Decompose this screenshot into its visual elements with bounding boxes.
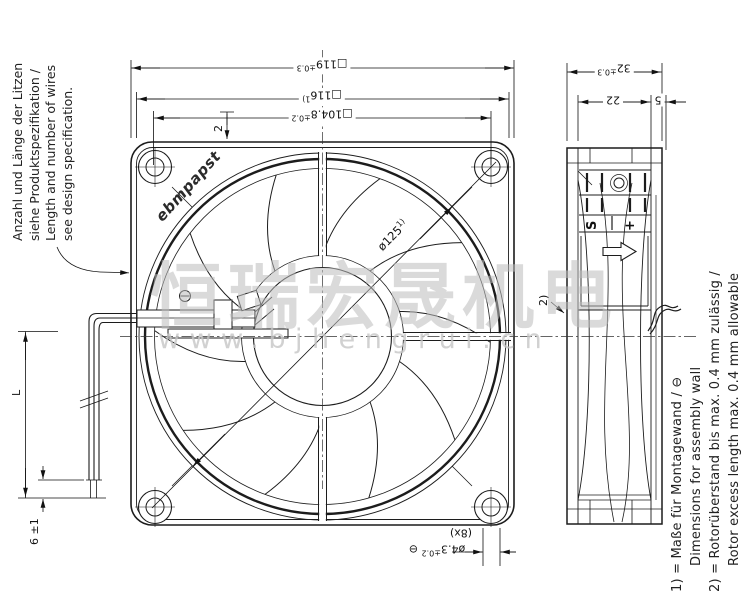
note-line: Length and number of wires: [43, 63, 60, 241]
dim-outer-square: □119±0.3: [294, 58, 351, 75]
minus-datum-icon: ⊖: [409, 543, 418, 556]
footnotes: 1) = Maße für Montagewand / ⊖ Dimensions…: [668, 271, 744, 592]
note-line: see design specification.: [60, 63, 77, 241]
footnote-2-en: Rotor excess length max. 0.4 mm allowabl…: [725, 271, 744, 592]
dim-hole-dia: ø4.3±0.2 ⊖: [406, 543, 468, 560]
dim-hole-spacing: □104.8±0.2: [288, 108, 355, 125]
note-line: Anzahl und Länge der Litzen: [10, 63, 27, 241]
footnote-2-de: 2) = Rotorüberstand bis max. 0.4 mm zulä…: [706, 271, 725, 592]
terminal-mark-s: S: [585, 221, 600, 230]
dim-wire-offset: 2: [213, 125, 225, 132]
dim-wire-length: L: [11, 390, 23, 396]
dim-depth-sub2: 5: [652, 94, 665, 107]
dim-depth-sub1: 22: [603, 94, 623, 107]
lead-wires: [80, 314, 137, 499]
terminal-mark-plus: +: [623, 220, 638, 231]
footnote-1-en: Dimensions for assembly wall: [687, 271, 706, 592]
ref-rotor-overhang: 2): [538, 295, 550, 306]
dim-hole-count: (8x): [447, 527, 475, 540]
dim-wall-square: □1161): [299, 89, 345, 106]
dim-strip-length: 6 ±1: [29, 518, 41, 545]
dim-depth: 32±0.3: [594, 62, 633, 79]
wire-spec-note: Anzahl und Länge der Litzen siehe Produk…: [10, 63, 76, 241]
watermark-url: www.bjhengrui.cn: [158, 324, 551, 355]
note-line: siehe Produktspezifikation /: [27, 63, 44, 241]
technical-drawing-page: 恒瑞宏晟机电 www.bjhengrui.cn ebmpapst □119±0.…: [0, 0, 750, 595]
footnote-1-de: 1) = Maße für Montagewand / ⊖: [668, 271, 687, 592]
